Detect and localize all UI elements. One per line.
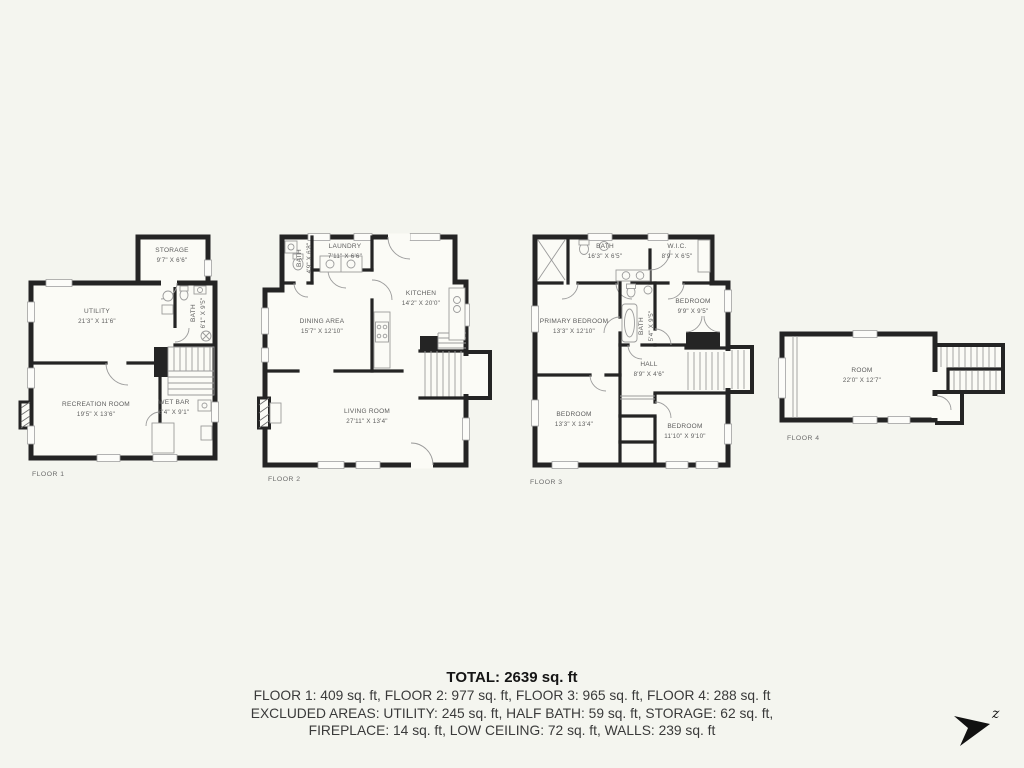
floor-plan-sheet: STORAGE 9'7" X 6'6" UTILITY 21'3" X 11'6… [0, 0, 1024, 768]
floor-areas-line: FLOOR 1: 409 sq. ft, FLOOR 2: 977 sq. ft… [0, 687, 1024, 705]
room-label-dining-area: DINING AREA 15'7" X 12'10" [300, 317, 345, 337]
floor-2-plan: LAUNDRY 7'11" X 6'6" BATH 4'9" X 6'8" KI… [258, 228, 503, 490]
floor-2-caption: FLOOR 2 [268, 476, 301, 483]
area-summary: TOTAL: 2639 sq. ft FLOOR 1: 409 sq. ft, … [0, 668, 1024, 740]
north-label: z [992, 706, 999, 722]
room-label-bedroom-br: BEDROOM 11'10" X 9'10" [664, 422, 705, 442]
excluded-areas-line-1: EXCLUDED AREAS: UTILITY: 245 sq. ft, HAL… [0, 705, 1024, 723]
room-label-wic: W.I.C. 8'9" X 6'5" [662, 242, 693, 262]
room-label-living-room: LIVING ROOM 27'11" X 13'4" [344, 407, 390, 427]
room-label-primary-bedroom: PRIMARY BEDROOM 13'3" X 12'10" [540, 317, 609, 337]
floor-1-plan: STORAGE 9'7" X 6'6" UTILITY 21'3" X 11'6… [18, 230, 218, 490]
floor-1-drawing [18, 230, 218, 490]
compass: z [948, 700, 1018, 760]
floor-4-plan: ROOM 22'0" X 12'7" FLOOR 4 [778, 328, 1013, 453]
room-label-utility: UTILITY 21'3" X 11'6" [78, 307, 116, 327]
room-label-bath-f3-small: BATH 5'4" X 9'5" [637, 311, 657, 342]
floor-4-caption: FLOOR 4 [787, 435, 820, 442]
room-label-storage: STORAGE 9'7" X 6'6" [155, 246, 188, 266]
floor-1-caption: FLOOR 1 [32, 471, 65, 478]
excluded-areas-line-2: FIREPLACE: 14 sq. ft, LOW CEILING: 72 sq… [0, 722, 1024, 740]
floor-3-plan: BATH 16'3" X 6'5" W.I.C. 8'9" X 6'5" PRI… [528, 228, 768, 490]
total-area: TOTAL: 2639 sq. ft [0, 668, 1024, 687]
room-label-wet-bar: WET BAR 8'4" X 9'1" [158, 398, 189, 418]
room-label-recreation-room: RECREATION ROOM 19'5" X 13'6" [62, 400, 130, 420]
room-label-room: ROOM 22'0" X 12'7" [843, 366, 881, 386]
north-arrow-icon [948, 700, 1018, 760]
room-label-bath-f2: BATH 4'9" X 6'8" [295, 243, 315, 274]
room-label-kitchen: KITCHEN 14'2" X 20'0" [402, 289, 440, 309]
room-label-bedroom-tr: BEDROOM 9'9" X 9'5" [675, 297, 710, 317]
room-label-bath-f1: BATH 6'1" X 9'5" [189, 298, 209, 329]
room-label-laundry: LAUNDRY 7'11" X 6'6" [328, 242, 362, 262]
room-label-bath-f3: BATH 16'3" X 6'5" [588, 242, 623, 262]
room-label-hall: HALL 8'9" X 4'6" [634, 360, 665, 380]
floor-3-caption: FLOOR 3 [530, 479, 563, 486]
room-label-bedroom-bl: BEDROOM 13'3" X 13'4" [555, 410, 593, 430]
